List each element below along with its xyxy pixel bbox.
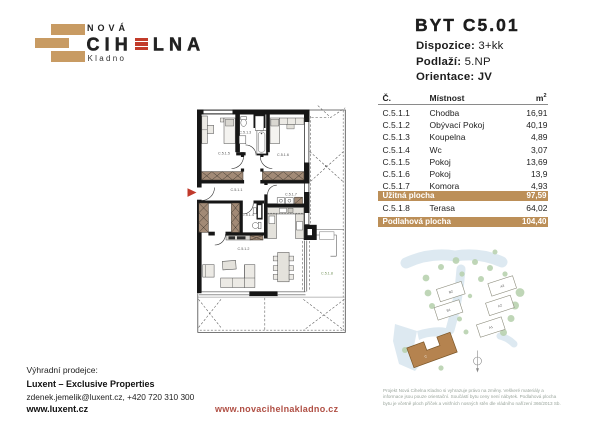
svg-text:C.5.1.3: C.5.1.3: [239, 131, 251, 135]
svg-text:C.5.1.8: C.5.1.8: [321, 272, 333, 276]
svg-text:C.5.1.4: C.5.1.4: [242, 213, 254, 217]
svg-text:C.5.1.5: C.5.1.5: [218, 152, 230, 156]
svg-text:C.5.1.2: C.5.1.2: [238, 247, 250, 251]
svg-text:C.5.1.1: C.5.1.1: [231, 188, 243, 192]
svg-text:C.5.1.6: C.5.1.6: [277, 153, 289, 157]
svg-text:C.5.1.7: C.5.1.7: [285, 192, 297, 196]
